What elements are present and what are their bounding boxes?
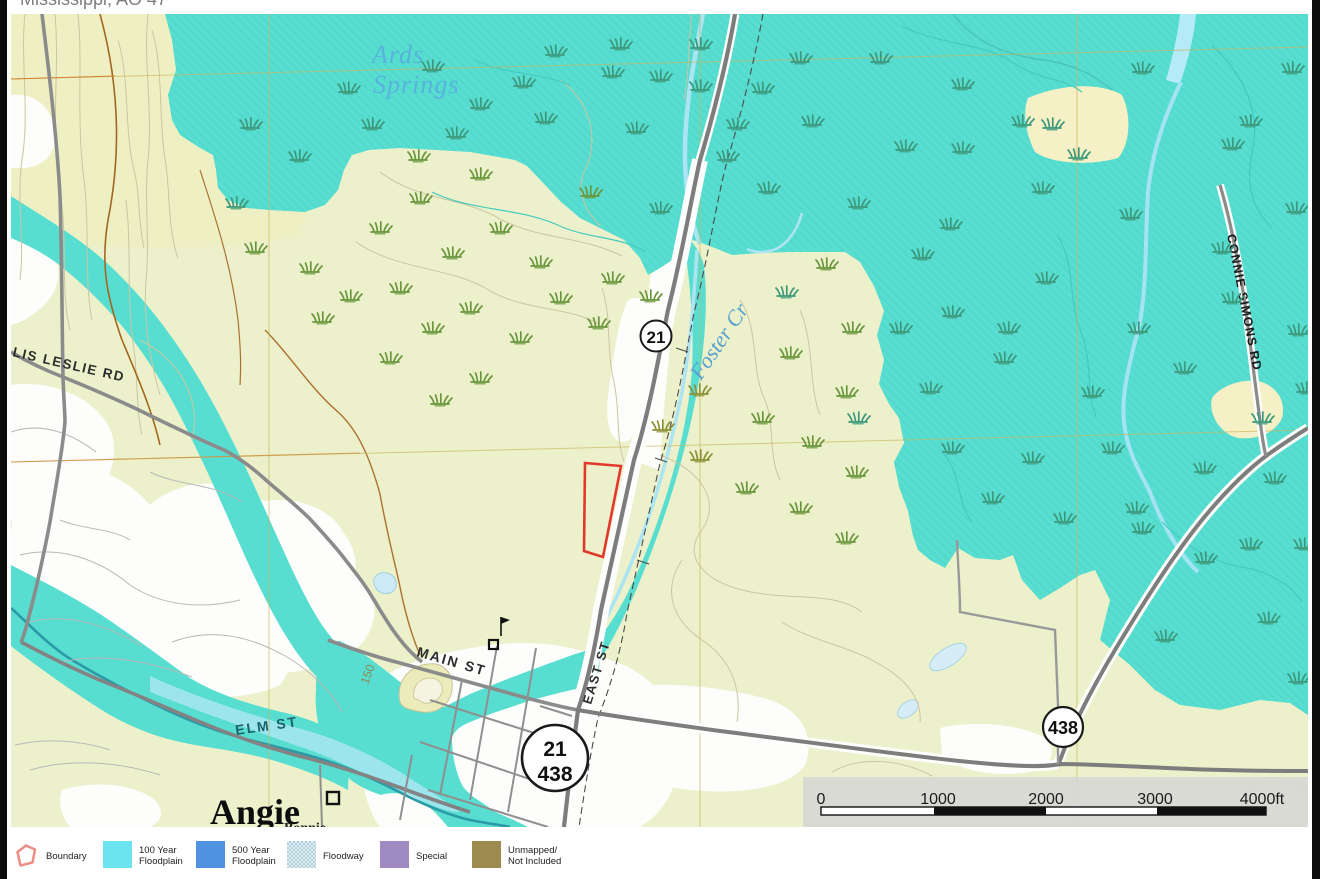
svg-text:Unmapped/: Unmapped/ — [508, 845, 557, 856]
svg-text:21: 21 — [543, 738, 567, 761]
svg-text:2000: 2000 — [1028, 791, 1064, 808]
svg-text:3000: 3000 — [1137, 791, 1173, 808]
svg-text:21: 21 — [647, 328, 666, 347]
svg-text:Special: Special — [416, 851, 447, 862]
svg-text:Floodplain: Floodplain — [139, 856, 183, 867]
svg-text:Boundary: Boundary — [46, 851, 87, 862]
svg-text:0: 0 — [817, 791, 826, 808]
svg-text:Floodplain: Floodplain — [232, 856, 276, 867]
svg-text:100 Year: 100 Year — [139, 845, 177, 856]
svg-text:Floodway: Floodway — [323, 851, 364, 862]
svg-text:500 Year: 500 Year — [232, 845, 270, 856]
svg-text:438: 438 — [1048, 718, 1078, 738]
svg-text:438: 438 — [537, 763, 572, 786]
svg-text:Not Included: Not Included — [508, 856, 561, 867]
svg-text:Ards: Ards — [370, 40, 424, 69]
svg-text:1000: 1000 — [920, 791, 956, 808]
svg-text:Mississippi, AO 47: Mississippi, AO 47 — [20, 0, 167, 9]
svg-text:Springs: Springs — [373, 70, 459, 99]
svg-text:4000ft: 4000ft — [1240, 791, 1285, 808]
